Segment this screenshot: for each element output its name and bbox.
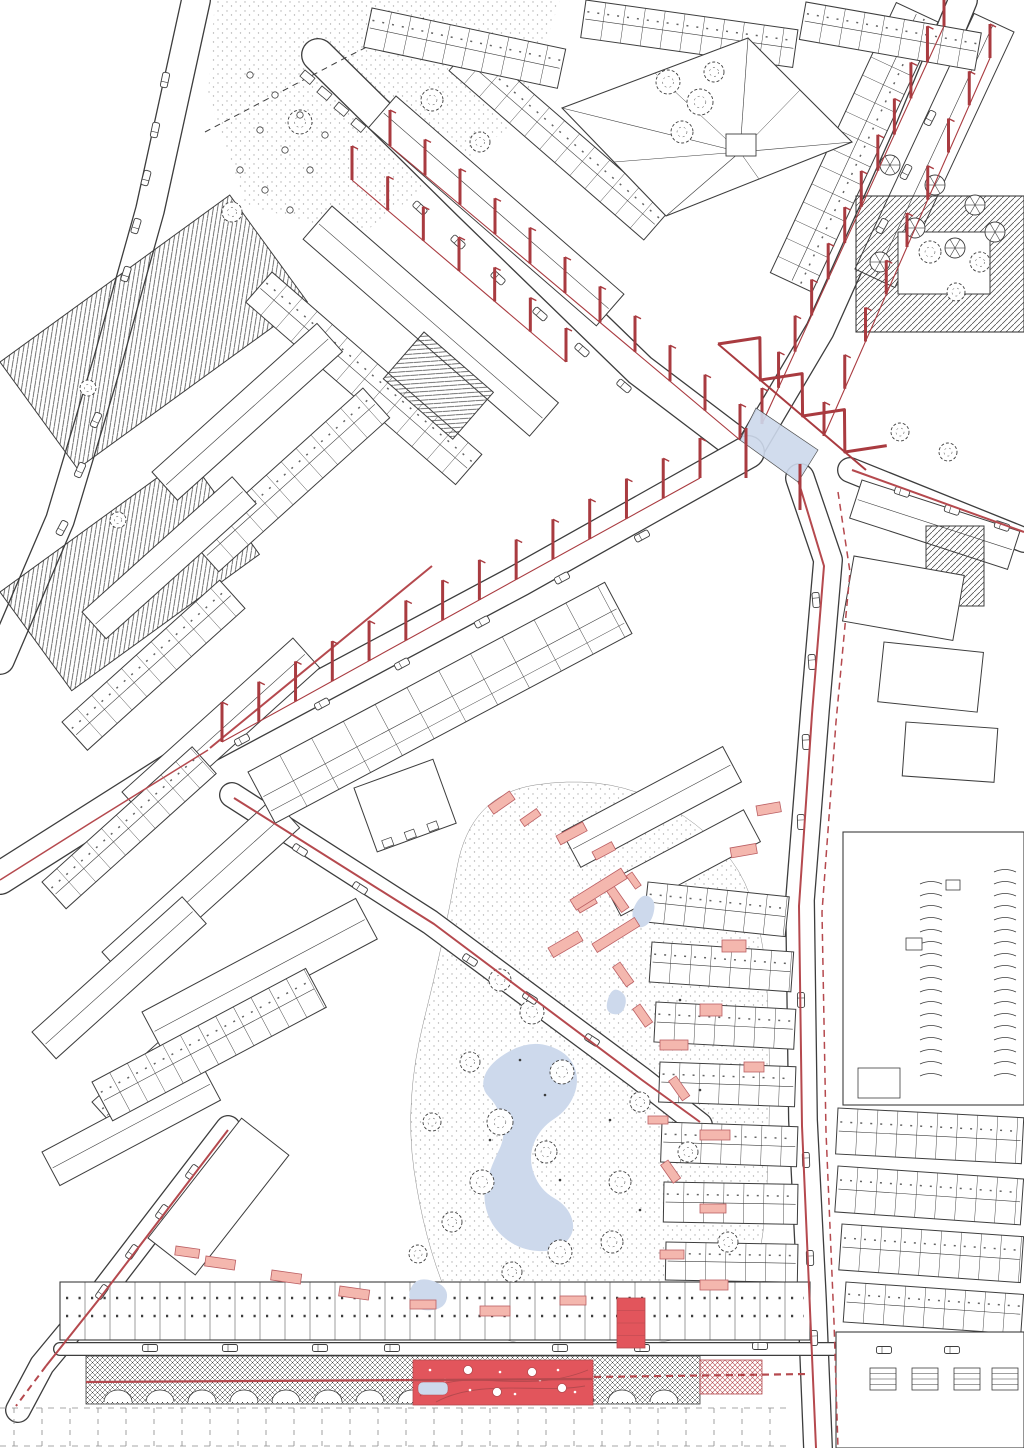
tree <box>502 1262 522 1282</box>
cafe-table <box>272 92 278 98</box>
cafe-table <box>297 112 303 118</box>
car-body <box>313 1345 328 1352</box>
red-hatched-zone <box>700 1360 762 1394</box>
person-dot <box>519 1059 522 1062</box>
tree <box>678 1142 698 1162</box>
tree <box>222 202 242 222</box>
car <box>223 1345 238 1352</box>
highlighted-building <box>648 1116 668 1124</box>
tree <box>421 89 443 111</box>
rooftop-box <box>906 938 922 950</box>
cafe-table <box>262 187 268 193</box>
highlighted-building <box>700 1204 726 1213</box>
car <box>313 1345 328 1352</box>
car-body <box>753 1343 768 1350</box>
tree <box>970 252 990 272</box>
tree <box>630 1092 650 1112</box>
tree <box>656 70 680 94</box>
tree <box>442 1212 462 1232</box>
highlighted-building <box>700 1280 728 1290</box>
plaza-tree <box>464 1366 473 1375</box>
tree <box>409 1245 427 1263</box>
highlighted-building <box>660 1040 688 1050</box>
person-dot <box>544 1094 547 1097</box>
building-strip-gable <box>836 1108 1024 1164</box>
plaza-tree <box>493 1388 502 1397</box>
tree <box>947 283 965 301</box>
person-dot <box>609 1119 612 1122</box>
tree <box>548 1240 572 1264</box>
car <box>385 1345 400 1352</box>
highlighted-building-fill <box>410 1300 436 1309</box>
rooftop-box <box>858 1068 900 1098</box>
plaza-person-dot <box>429 1369 432 1372</box>
highlighted-building-fill <box>660 1250 684 1259</box>
plaza-person-dot <box>499 1371 502 1374</box>
car-body <box>802 734 810 749</box>
cafe-table <box>282 147 288 153</box>
tree <box>609 1171 631 1193</box>
highlighted-building-fill <box>700 1130 730 1140</box>
warehouse-roof <box>843 832 1024 1105</box>
rooftop-box <box>946 880 960 890</box>
plaza-pool <box>418 1382 448 1395</box>
tree <box>601 1231 623 1253</box>
car-body <box>553 1345 568 1352</box>
car <box>553 1345 568 1352</box>
highlighted-building <box>744 1062 764 1072</box>
highlighted-building <box>700 1004 722 1016</box>
building-strip-plain <box>878 642 984 712</box>
highlighted-building <box>700 1130 730 1140</box>
tree <box>460 1052 480 1072</box>
highlighted-building-fill <box>722 940 746 952</box>
highlighted-building-fill <box>700 1004 722 1016</box>
highlighted-building-fill <box>648 1116 668 1124</box>
car <box>877 1347 892 1354</box>
person-dot <box>679 999 682 1002</box>
tree <box>550 1060 574 1084</box>
building-outline <box>878 642 984 712</box>
tree <box>423 1113 441 1131</box>
tree <box>80 380 96 396</box>
tree <box>535 1141 557 1163</box>
tree <box>671 121 693 143</box>
highlighted-building-fill <box>700 1204 726 1213</box>
person-dot <box>639 1209 642 1212</box>
hall-cupola <box>726 134 756 156</box>
car-body <box>812 592 820 608</box>
tree <box>939 443 957 461</box>
plaza-tree <box>528 1368 537 1377</box>
plaza-person-dot <box>557 1369 560 1372</box>
person-dot <box>699 1089 702 1092</box>
tree <box>110 512 126 528</box>
car-body <box>143 1345 158 1352</box>
highlighted-building <box>480 1306 510 1316</box>
building-strip-gable <box>663 1182 798 1224</box>
plaza-person-dot <box>469 1389 472 1392</box>
tree <box>919 241 941 263</box>
cafe-table <box>322 132 328 138</box>
car <box>753 1343 768 1350</box>
car <box>143 1345 158 1352</box>
highlighted-building-fill <box>700 1280 728 1290</box>
tree <box>687 89 713 115</box>
plaza-person-dot <box>514 1393 517 1396</box>
tree <box>487 1109 513 1135</box>
car-body <box>385 1345 400 1352</box>
car <box>802 734 810 749</box>
tree <box>718 1232 738 1252</box>
person-dot <box>559 1179 562 1182</box>
highlighted-building <box>722 940 746 952</box>
highlighted-building-fill <box>744 1062 764 1072</box>
highlighted-building-fill <box>480 1306 510 1316</box>
cafe-table <box>287 207 293 213</box>
building-strip-gable <box>661 1122 798 1167</box>
car <box>945 1347 960 1354</box>
car-body <box>877 1347 892 1354</box>
person-dot <box>489 1139 492 1142</box>
car <box>812 592 820 608</box>
plaza-tree <box>558 1384 567 1393</box>
highlighted-building-fill <box>660 1040 688 1050</box>
car-body <box>945 1347 960 1354</box>
building-strip-plain <box>902 722 998 782</box>
tree <box>704 62 724 82</box>
highlighted-building <box>560 1296 586 1305</box>
city-drawing-svg <box>0 0 1024 1448</box>
axonometric-city-drawing <box>0 0 1024 1448</box>
car-body <box>223 1345 238 1352</box>
highlighted-building <box>660 1250 684 1259</box>
highlighted-building-fill <box>560 1296 586 1305</box>
tree <box>470 132 490 152</box>
cafe-table <box>247 72 253 78</box>
tree <box>891 423 909 441</box>
tree <box>470 1170 494 1194</box>
highlighted-building <box>410 1300 436 1309</box>
plaza-person-dot <box>574 1391 577 1394</box>
cafe-table <box>237 167 243 173</box>
building-outline <box>902 722 998 782</box>
cafe-table <box>307 167 313 173</box>
cafe-table <box>257 127 263 133</box>
